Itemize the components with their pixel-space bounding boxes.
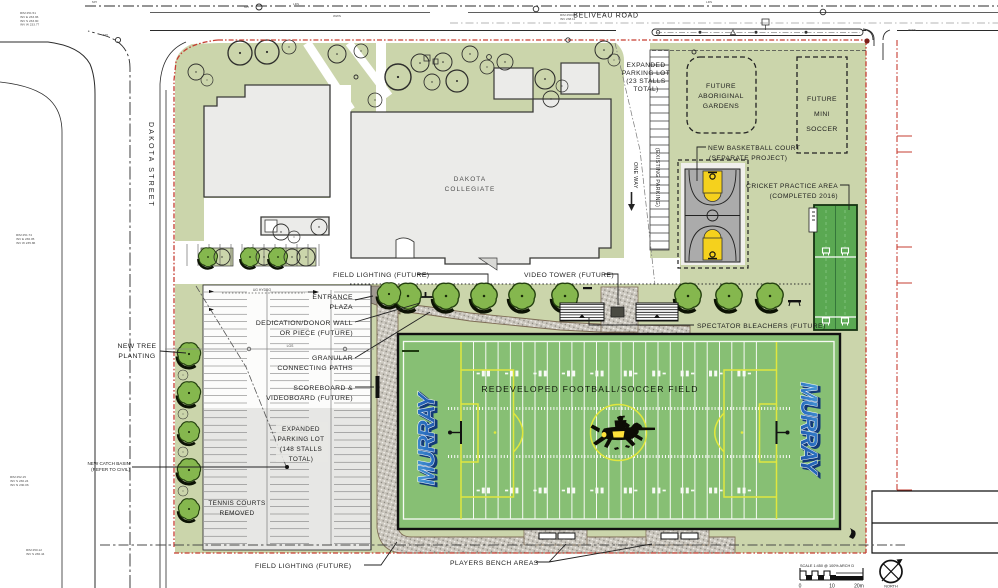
svg-text:CONNECTING PATHS: CONNECTING PATHS	[277, 365, 353, 372]
svg-text:EXPANDED: EXPANDED	[282, 426, 320, 433]
svg-text:EXPANDED: EXPANDED	[627, 62, 666, 69]
svg-text:DAKOTA: DAKOTA	[454, 176, 486, 183]
svg-text:MH: MH	[103, 33, 108, 37]
svg-text:WWS: WWS	[908, 28, 916, 32]
svg-text:INV W 233.77: INV W 233.77	[20, 23, 40, 27]
svg-text:MURRAY: MURRAY	[796, 382, 822, 476]
svg-text:GRANULAR: GRANULAR	[312, 355, 353, 362]
svg-text:NEW BASKETBALL COURT: NEW BASKETBALL COURT	[708, 145, 800, 152]
svg-text:SCOREBOARD &: SCOREBOARD &	[293, 385, 353, 392]
svg-text:DAKOTA STREET: DAKOTA STREET	[147, 122, 154, 208]
svg-text:(COMPLETED 2016): (COMPLETED 2016)	[770, 193, 838, 200]
svg-text:ENTRANCE: ENTRANCE	[312, 294, 353, 301]
svg-text:FUTURE: FUTURE	[706, 83, 736, 90]
svg-text:REDEVELOPED FOOTBALL/SOCCER FI: REDEVELOPED FOOTBALL/SOCCER FIELD	[481, 384, 698, 394]
svg-text:SCALE 1:450 @ 100% ARCH D: SCALE 1:450 @ 100% ARCH D	[800, 564, 854, 568]
svg-text:VIDEOBOARD (FUTURE): VIDEOBOARD (FUTURE)	[266, 395, 353, 402]
svg-text:0: 0	[799, 584, 802, 588]
svg-text:PARKING LOT: PARKING LOT	[278, 436, 325, 443]
svg-text:FIELD LIGHTING (FUTURE): FIELD LIGHTING (FUTURE)	[333, 272, 429, 279]
svg-text:NEW CATCH BASIN: NEW CATCH BASIN	[87, 461, 130, 466]
svg-text:FIELD LIGHTING (FUTURE): FIELD LIGHTING (FUTURE)	[255, 563, 351, 570]
svg-text:NEW TREE: NEW TREE	[118, 343, 157, 350]
svg-text:20m: 20m	[854, 584, 864, 588]
svg-text:(REFER TO CIVIL): (REFER TO CIVIL)	[91, 467, 130, 472]
svg-text:OR PIECE (FUTURE): OR PIECE (FUTURE)	[280, 330, 353, 337]
svg-text:TENNIS COURTS: TENNIS COURTS	[208, 500, 265, 507]
svg-text:REMOVED: REMOVED	[219, 510, 254, 517]
svg-text:ONE WAY: ONE WAY	[632, 162, 638, 189]
svg-text:CRICKET PRACTICE AREA: CRICKET PRACTICE AREA	[746, 183, 838, 190]
svg-text:WWS: WWS	[333, 14, 341, 18]
svg-text:(SEPARATE PROJECT): (SEPARATE PROJECT)	[709, 155, 787, 162]
svg-text:LDS: LDS	[706, 0, 712, 4]
svg-text:PARKING LOT: PARKING LOT	[622, 70, 670, 77]
svg-text:10: 10	[829, 584, 835, 588]
svg-text:MH: MH	[244, 5, 249, 9]
svg-text:DEDICATION/DONOR WALL: DEDICATION/DONOR WALL	[256, 320, 353, 327]
svg-text:MURRAY: MURRAY	[413, 391, 439, 485]
svg-text:COLLEGIATE: COLLEGIATE	[445, 186, 496, 193]
svg-text:INV N 230.06: INV N 230.06	[10, 483, 29, 487]
svg-text:LGS: LGS	[287, 344, 295, 348]
svg-text:PLAYERS BENCH AREAS: PLAYERS BENCH AREAS	[450, 560, 539, 567]
svg-text:TOTAL): TOTAL)	[633, 86, 658, 93]
svg-text:ABORIGINAL: ABORIGINAL	[698, 93, 744, 100]
svg-text:PLAZA: PLAZA	[329, 304, 353, 311]
svg-text:GARDENS: GARDENS	[703, 103, 739, 110]
svg-text:INV S 236.44: INV S 236.44	[26, 552, 45, 556]
svg-text:UG HYDRO: UG HYDRO	[253, 288, 272, 292]
svg-text:SPECTATOR BLEACHERS (FUTURE): SPECTATOR BLEACHERS (FUTURE)	[697, 323, 826, 330]
svg-text:TOTAL): TOTAL)	[289, 456, 314, 463]
svg-text:FUTURE: FUTURE	[807, 96, 837, 103]
svg-text:(148 STALLS: (148 STALLS	[280, 446, 322, 453]
svg-text:(23 STALLS: (23 STALLS	[626, 78, 666, 85]
svg-text:VIDEO TOWER (FUTURE): VIDEO TOWER (FUTURE)	[524, 272, 614, 279]
svg-text:INV 238.11: INV 238.11	[560, 17, 576, 21]
svg-text:NORTH: NORTH	[884, 585, 898, 588]
svg-text:SOCCER: SOCCER	[806, 126, 837, 133]
svg-text:MH: MH	[92, 0, 97, 4]
svg-text:LDS: LDS	[293, 2, 299, 6]
svg-text:INV W 235.86: INV W 235.86	[16, 241, 36, 245]
svg-text:(EXISTING PARKING): (EXISTING PARKING)	[654, 148, 660, 207]
svg-text:MINI: MINI	[814, 111, 830, 118]
svg-text:PLANTING: PLANTING	[118, 353, 155, 360]
svg-text:BELIVEAU ROAD: BELIVEAU ROAD	[573, 13, 639, 20]
